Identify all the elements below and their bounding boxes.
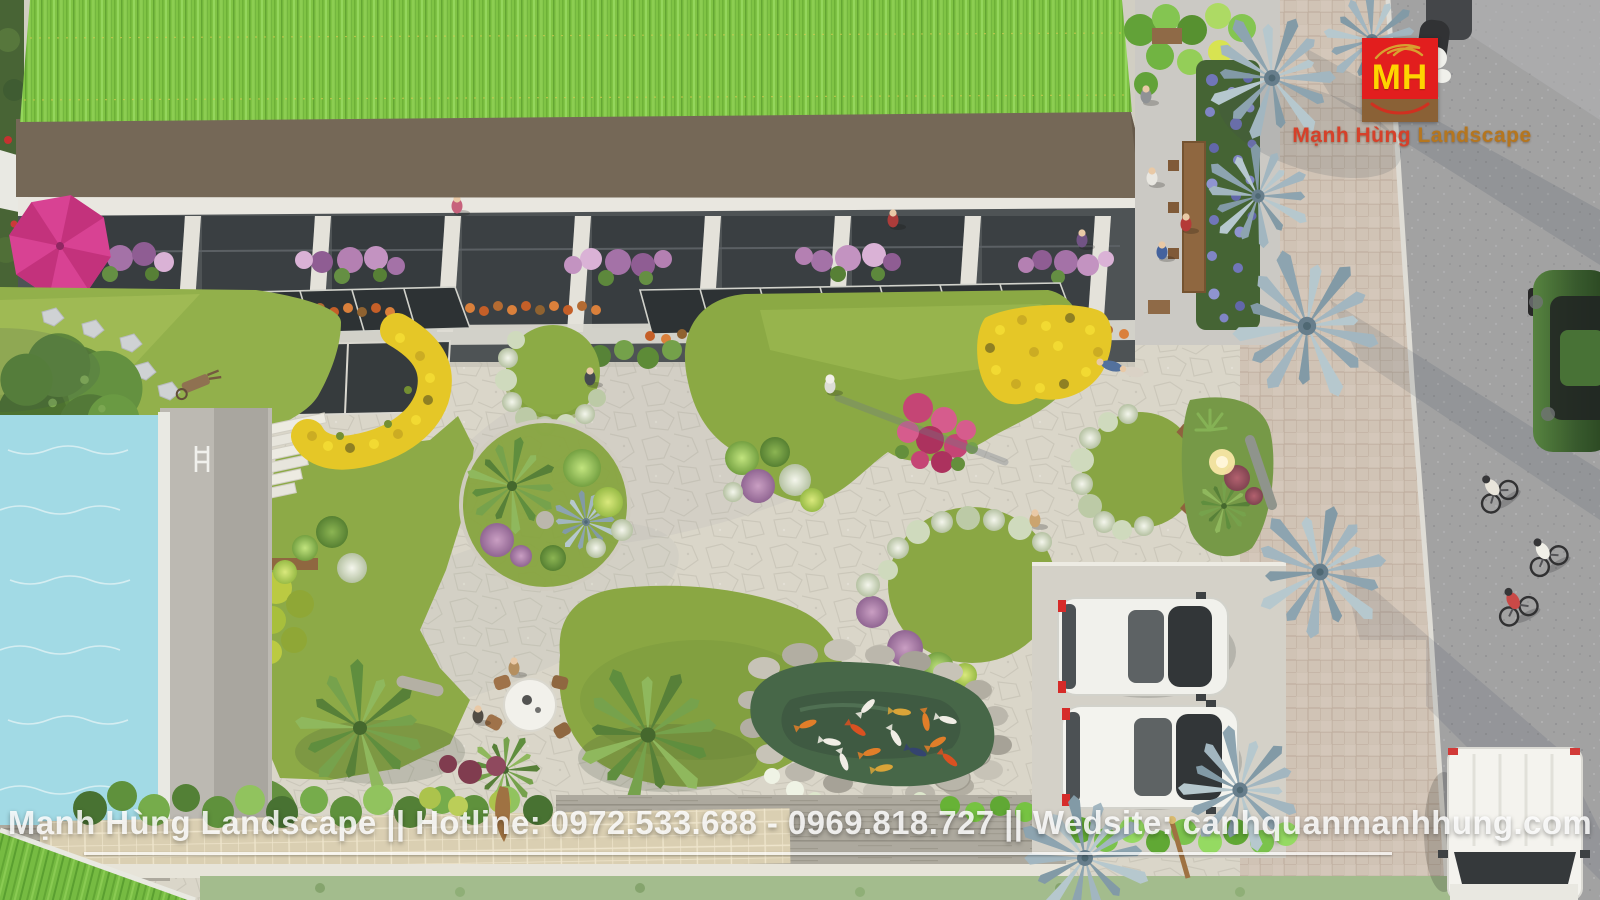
company-logo: MH bbox=[1362, 38, 1438, 122]
brand-name: Mạnh Hùng Landscape bbox=[1282, 124, 1542, 148]
logo-band bbox=[1362, 99, 1438, 122]
brand-name-en: Landscape bbox=[1411, 124, 1532, 147]
logo-monogram: MH bbox=[1362, 60, 1438, 96]
brand-name-vi: Mạnh Hùng bbox=[1292, 124, 1411, 147]
logo-red-arc-icon bbox=[1362, 99, 1438, 122]
watermark-underline bbox=[84, 852, 1392, 855]
watermark-text: Mạnh Hùng Landscape || Hotline: 0972.533… bbox=[0, 804, 1600, 842]
aerial-landscape-render: MH Mạnh Hùng Landscape Mạnh Hùng Landsca… bbox=[0, 0, 1600, 900]
